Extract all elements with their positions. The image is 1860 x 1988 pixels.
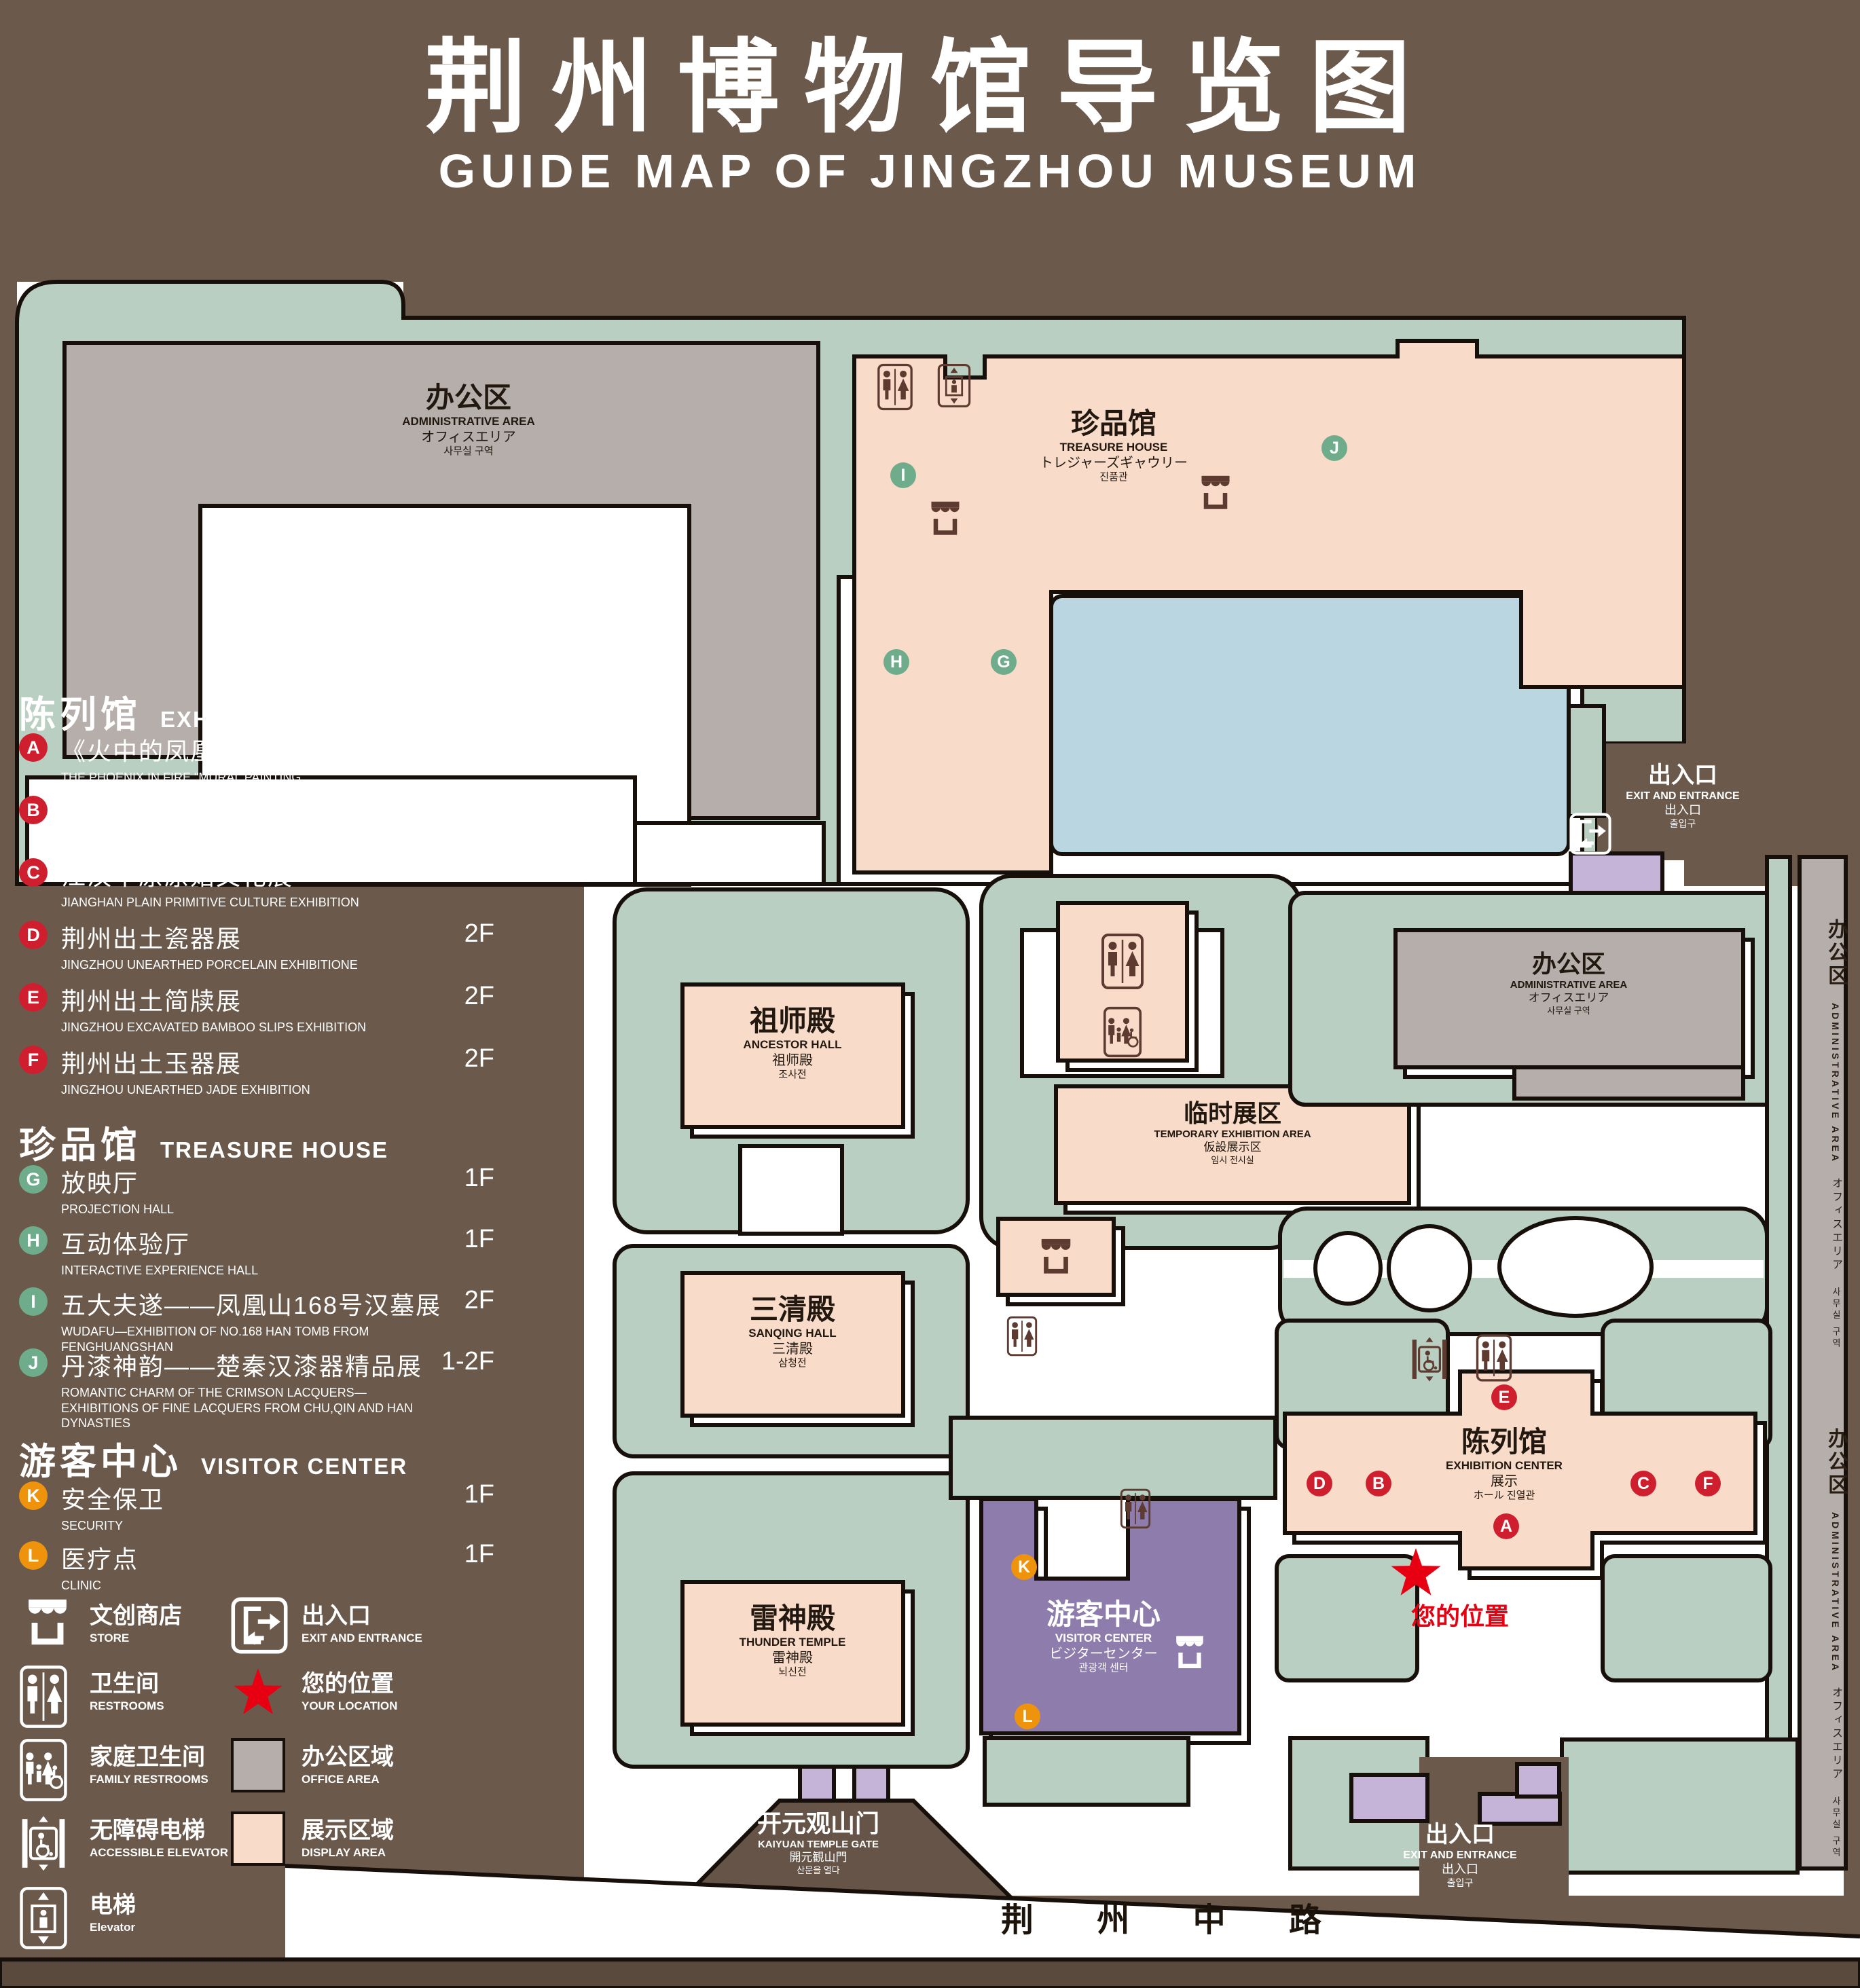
elevator-icon (19, 1886, 68, 1950)
gate-pylon-east (854, 1767, 888, 1801)
marker-i: I (890, 462, 916, 488)
marker-g: G (991, 649, 1017, 675)
legend-item-a: A 《火中的凤凰》壁画 1F THE PHOENIX IN FIRE "MURA… (19, 732, 494, 786)
admin-area-right-label: 办公区 ADMINISTRATIVE AREA オフィスエリア 사무실 구역 (1510, 949, 1628, 1016)
exit-icon (1569, 813, 1611, 855)
visitor-center-label: 游客中心 VISITOR CENTER ビジターセンター 관광객 센터 (1046, 1597, 1161, 1675)
gate-pylon-west (800, 1767, 834, 1801)
exit-top-green-tab (1569, 706, 1604, 816)
marker-a: A (19, 733, 48, 762)
marker-j: J (19, 1348, 48, 1377)
guide-map-page: { "title": {"zh": "荆州博物馆导览图", "en": "GUI… (0, 0, 1860, 1988)
temporary-exhibition-label: 临时展区 TEMPORARY EXHIBITION AREA 仮設展示区 임시 … (1154, 1099, 1311, 1166)
exit-bottom-block-east-high (1517, 1764, 1559, 1797)
store-icon (1195, 474, 1236, 512)
marker-l: L (19, 1541, 48, 1570)
marker-e: E (19, 983, 48, 1012)
store-icon (1035, 1237, 1077, 1276)
legend-symbol-store: 文创商店STORE (19, 1597, 182, 1645)
kaiyuan-gate-label: 开元观山门 KAIYUAN TEMPLE GATE 開元観山門 산문을 열다 (757, 1809, 879, 1876)
sanqing-hall-label: 三清殿 SANQING HALL 三清殿 삼청전 (748, 1292, 836, 1370)
visitor-green-backdrop (951, 1418, 1275, 1498)
gate-side-green (985, 1738, 1188, 1805)
store-icon (925, 500, 966, 538)
restroom-icon (1120, 1488, 1151, 1529)
legend-section-exhibition-center: 陈列馆EXHIBITION CENTER (19, 684, 410, 738)
accessible-elevator-icon (19, 1811, 68, 1875)
road-strip-south (0, 1959, 1860, 1988)
exit-bottom-label: 出入口 EXIT AND ENTRANCE 出入口 출입구 (1403, 1821, 1516, 1889)
admin-strip-label-lower: 办公区 ADMINISTRATIVE AREA オフィスエリア 사무실 구역 (1800, 1412, 1846, 1874)
legend-section-visitor-center: 游客中心VISITOR CENTER (19, 1431, 407, 1485)
marker-c: C (19, 858, 48, 887)
ancestor-hall-label: 祖师殿 ANCESTOR HALL 祖师殿 조사전 (743, 1004, 841, 1082)
page-margin-patch (403, 272, 1860, 318)
office-area-swatch (231, 1738, 285, 1792)
legend-item-g: G 放映厅 1F PROJECTION HALL (19, 1164, 494, 1217)
your-location-star-icon (231, 1665, 285, 1719)
marker-b: B (19, 796, 48, 824)
exhibition-green-se (1603, 1556, 1770, 1680)
restroom-icon (877, 363, 913, 411)
your-location-star-icon (1388, 1545, 1444, 1600)
restroom-icon (1006, 1316, 1038, 1357)
marker-c: C (1630, 1471, 1656, 1496)
garden-loop-east (1499, 1218, 1652, 1316)
marker-g: G (19, 1165, 48, 1194)
elevator-icon (937, 362, 971, 409)
display-area-swatch (231, 1811, 285, 1866)
legend-symbol-family-restroom: 家庭卫生间FAMILY RESTROOMS (19, 1738, 208, 1786)
marker-b: B (1366, 1471, 1391, 1496)
legend-item-h: H 互动体验厅 1F INTERACTIVE EXPERIENCE HALL (19, 1225, 494, 1278)
exit-top-label: 出入口 EXIT AND ENTRANCE 出入口 출입구 (1626, 762, 1739, 830)
store-icon (1170, 1634, 1209, 1671)
admin-strip-label-upper: 办公区 ADMINISTRATIVE AREA オフィスエリア 사무실 구역 (1800, 903, 1846, 1365)
legend-symbol-restroom: 卫生间RESTROOMS (19, 1665, 164, 1713)
garden-loop-west (1315, 1233, 1381, 1304)
legend-item-d: D 荆州出土瓷器展 2F JINGZHOU UNEARTHED PORCELAI… (19, 919, 494, 973)
marker-k: K (19, 1481, 48, 1510)
legend-symbol-elevator: 电梯Elevator (19, 1886, 136, 1934)
ancestor-court-corridor (740, 1146, 842, 1234)
legend-symbol-office-area: 办公区域OFFICE AREA (231, 1738, 394, 1786)
road-label: 荆 州 中 路 (1001, 1893, 1349, 1940)
thunder-temple-label: 雷神殿 THUNDER TEMPLE 雷神殿 뇌신전 (740, 1601, 846, 1679)
exit-bottom-block-west (1351, 1775, 1427, 1821)
your-location-label: 您的位置 (1411, 1597, 1509, 1632)
exhibition-center-label: 陈列馆 EXHIBITION CENTER 展示 ホール 진열관 (1446, 1424, 1563, 1503)
restroom-icon (1476, 1333, 1512, 1382)
marker-j: J (1321, 435, 1347, 461)
marker-h: H (19, 1226, 48, 1255)
legend-symbol-accessible-elevator: 无障碍电梯ACCESSIBLE ELEVATOR (19, 1811, 228, 1860)
legend-section-treasure-house: 珍品馆TREASURE HOUSE (19, 1115, 388, 1168)
legend-symbol-exit: 出入口EXIT AND ENTRANCE (231, 1597, 422, 1645)
marker-i: I (19, 1287, 48, 1316)
legend-item-i: I 五大夫遂——凤凰山168号汉墓展 2F WUDAFU—EXHIBITION … (19, 1286, 494, 1355)
treasure-house-label: 珍品馆 TREASURE HOUSE トレジャーズギャウリー 진품관 (1040, 406, 1188, 484)
pond (1051, 596, 1569, 854)
marker-l: L (1015, 1704, 1040, 1729)
marker-a: A (1493, 1513, 1519, 1539)
accessible-elevator-icon (1410, 1333, 1449, 1385)
garden-loop-center (1389, 1226, 1470, 1310)
admin-area-top-label: 办公区 ADMINISTRATIVE AREA オフィスエリア 사무실 구역 (402, 380, 535, 458)
family-restroom-icon (19, 1738, 68, 1802)
restroom-icon (1101, 933, 1144, 990)
marker-f: F (19, 1046, 48, 1074)
legend-item-c: C 江汉平原原始文化展 1F JIANGHAN PLAIN PRIMITIVE … (19, 857, 494, 910)
legend-item-e: E 荆州出土简牍展 2F JINGZHOU EXCAVATED BAMBOO S… (19, 982, 494, 1035)
family-restroom-icon (1103, 1006, 1142, 1058)
store-icon (19, 1597, 76, 1649)
south-green-east (1562, 1739, 1798, 1873)
restroom-icon (19, 1665, 68, 1729)
legend-item-f: F 荆州出土玉器展 2F JINGZHOU UNEARTHED JADE EXH… (19, 1044, 494, 1098)
legend-item-b: B 荆州出土铜器展 1F JINGZHOU UNEARTHED BRONZE W… (19, 794, 494, 848)
marker-h: H (883, 649, 909, 675)
legend-item-j: J 丹漆神韵——楚秦汉漆器精品展 1-2F ROMANTIC CHARM OF … (19, 1347, 494, 1431)
marker-k: K (1011, 1554, 1037, 1580)
marker-d: D (1307, 1471, 1332, 1496)
legend-symbol-display-area: 展示区域DISPLAY AREA (231, 1811, 394, 1860)
exit-icon (231, 1597, 288, 1654)
admin-right-wing (1514, 1067, 1743, 1099)
legend-symbol-your-location: 您的位置YOUR LOCATION (231, 1665, 397, 1713)
marker-f: F (1695, 1471, 1721, 1496)
marker-e: E (1491, 1384, 1517, 1410)
legend-item-k: K 安全保卫 1F SECURITY (19, 1480, 494, 1534)
legend-item-l: L 医疗点 1F CLINIC (19, 1540, 494, 1594)
campus-path-corridor (635, 823, 824, 884)
marker-d: D (19, 921, 48, 949)
